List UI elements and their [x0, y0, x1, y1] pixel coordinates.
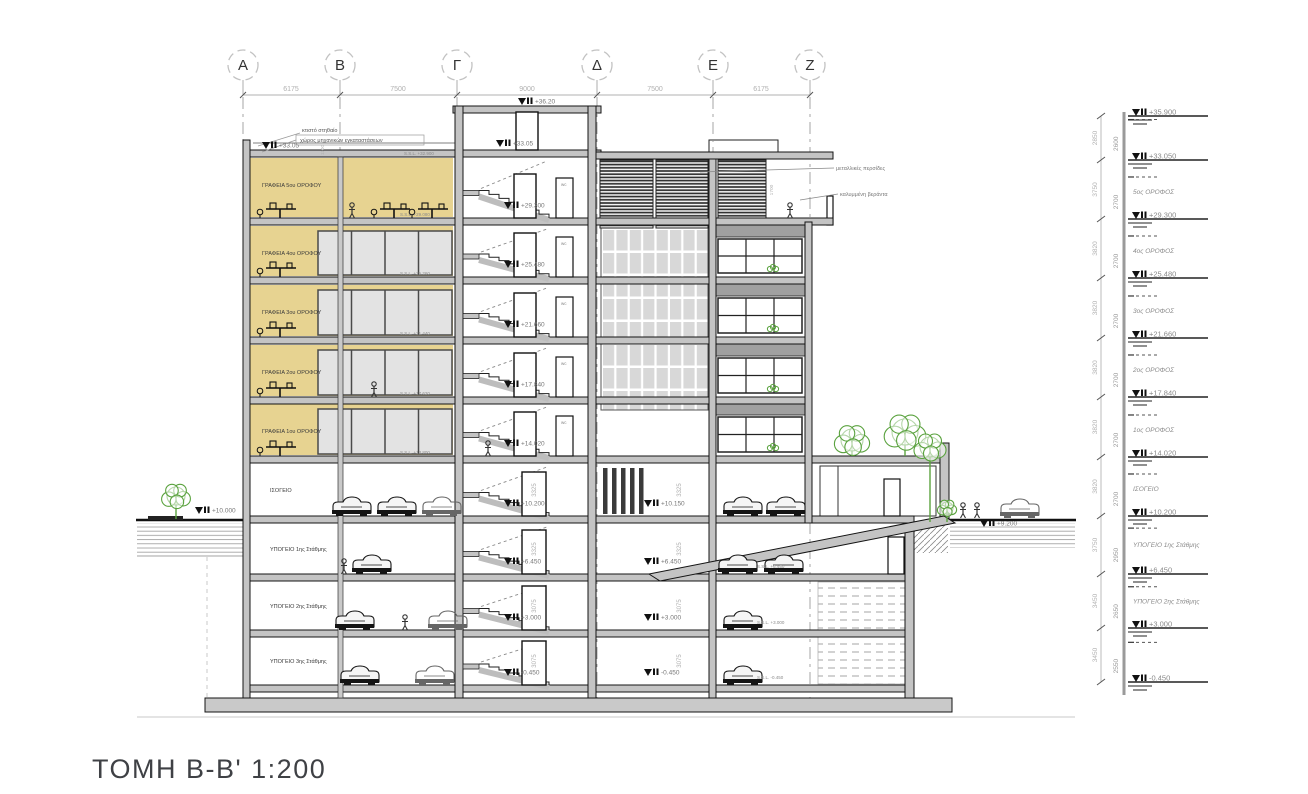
car-icon [352, 555, 391, 574]
svg-text:καλυμμένη βεράντα: καλυμμένη βεράντα [840, 191, 888, 198]
svg-text:Δ: Δ [592, 57, 602, 74]
svg-text:2700: 2700 [1113, 372, 1120, 387]
svg-text:2950: 2950 [1113, 547, 1120, 562]
svg-text:3450: 3450 [1092, 647, 1099, 662]
svg-text:wc: wc [561, 182, 567, 187]
svg-text:+9.200: +9.200 [997, 521, 1017, 528]
grid-dimension-line: ΑΒΓΔΕΖ61757500900075006175 [228, 50, 825, 98]
svg-text:3820: 3820 [1092, 419, 1099, 434]
svg-text:ΥΠΟΓΕΙΟ 2ης Στάθμης: ΥΠΟΓΕΙΟ 2ης Στάθμης [1133, 597, 1200, 605]
svg-text:S.S.L. -0.450: S.S.L. -0.450 [757, 675, 784, 680]
person-figure [787, 203, 793, 218]
svg-text:Ε: Ε [708, 57, 718, 74]
svg-text:2550: 2550 [1113, 659, 1120, 674]
svg-text:ΓΡΑΦΕΙΑ 2ου ΟΡΟΦΟΥ: ΓΡΑΦΕΙΑ 2ου ΟΡΟΦΟΥ [262, 370, 322, 376]
car-icon [766, 497, 805, 516]
svg-text:3325: 3325 [532, 483, 538, 497]
svg-text:+33.05: +33.05 [513, 141, 533, 148]
svg-text:+6.450: +6.450 [1149, 566, 1172, 575]
svg-text:wc: wc [561, 301, 567, 306]
svg-text:1ος ΟΡΟΦΟΣ: 1ος ΟΡΟΦΟΣ [1133, 427, 1175, 434]
svg-text:ΥΠΟΓΕΙΟ 1ης Στάθμης: ΥΠΟΓΕΙΟ 1ης Στάθμης [270, 546, 327, 553]
svg-text:2650: 2650 [1113, 604, 1120, 619]
svg-text:+25.480: +25.480 [1149, 270, 1176, 279]
svg-text:S.S.L. +17.620: S.S.L. +17.620 [400, 391, 430, 396]
svg-text:ΓΡΑΦΕΙΑ 5ου ΟΡΟΦΟΥ: ΓΡΑΦΕΙΑ 5ου ΟΡΟΦΟΥ [262, 183, 322, 189]
svg-text:ΓΡΑΦΕΙΑ 1ου ΟΡΟΦΟΥ: ΓΡΑΦΕΙΑ 1ου ΟΡΟΦΟΥ [262, 429, 322, 435]
level-scale: +35.90028502600+33.050375027005ος ΟΡΟΦΟΣ… [1092, 108, 1208, 696]
svg-text:+10.200: +10.200 [521, 501, 545, 508]
svg-text:+29.300: +29.300 [521, 203, 545, 210]
svg-text:7500: 7500 [390, 86, 406, 93]
svg-text:+14.020: +14.020 [1149, 449, 1176, 458]
svg-text:ΓΡΑΦΕΙΑ 3ου ΟΡΟΦΟΥ: ΓΡΑΦΕΙΑ 3ου ΟΡΟΦΟΥ [262, 310, 322, 316]
svg-text:2ος ΟΡΟΦΟΣ: 2ος ΟΡΟΦΟΣ [1132, 367, 1175, 374]
svg-text:2700: 2700 [1113, 432, 1120, 447]
car-icon [723, 497, 762, 516]
svg-text:wc: wc [561, 241, 567, 246]
svg-text:μεταλλικές περσίδες: μεταλλικές περσίδες [836, 165, 886, 172]
svg-text:χώρος μηχανικών εγκαταστάσεων: χώρος μηχανικών εγκαταστάσεων [300, 137, 383, 144]
svg-text:+10.000: +10.000 [212, 508, 236, 515]
svg-text:6175: 6175 [283, 86, 299, 93]
svg-text:2850: 2850 [1092, 130, 1099, 145]
svg-text:9000: 9000 [519, 86, 535, 93]
svg-text:-0.450: -0.450 [661, 670, 680, 677]
svg-text:+3.000: +3.000 [1149, 620, 1172, 629]
svg-text:3325: 3325 [532, 542, 538, 556]
svg-text:S.S.L. +32.900: S.S.L. +32.900 [404, 151, 434, 156]
svg-text:+25.480: +25.480 [521, 262, 545, 269]
svg-text:Β: Β [335, 57, 345, 74]
svg-text:wc: wc [561, 420, 567, 425]
svg-text:2700: 2700 [1113, 194, 1120, 209]
svg-text:+14.020: +14.020 [521, 441, 545, 448]
svg-text:wc: wc [561, 361, 567, 366]
svg-text:6175: 6175 [753, 86, 769, 93]
svg-text:ΥΠΟΓΕΙΟ 3ης Στάθμης: ΥΠΟΓΕΙΟ 3ης Στάθμης [270, 658, 327, 665]
svg-text:3075: 3075 [532, 599, 538, 613]
svg-text:+29.300: +29.300 [1149, 211, 1176, 220]
person-figure [960, 503, 966, 518]
svg-text:S.S.L. +3.000: S.S.L. +3.000 [757, 620, 785, 625]
sheet: wcwcwcwcwcκτιστό στηθαίοχώρος μηχανικών … [0, 0, 1308, 794]
svg-text:3820: 3820 [1092, 300, 1099, 315]
car-icon [1000, 499, 1039, 518]
svg-text:+10.200: +10.200 [1149, 508, 1176, 517]
car-icon [340, 666, 379, 685]
section-title: ΤΟΜΗ Β-Β' 1:200 [92, 754, 326, 785]
svg-text:-0.450: -0.450 [521, 670, 540, 677]
svg-text:2700: 2700 [1113, 253, 1120, 268]
svg-text:+33.050: +33.050 [1149, 152, 1176, 161]
svg-text:2700: 2700 [1113, 313, 1120, 328]
svg-text:+6.450: +6.450 [521, 559, 541, 566]
svg-text:S.S.L. +13.800: S.S.L. +13.800 [400, 450, 430, 455]
svg-text:2600: 2600 [1113, 136, 1120, 151]
svg-text:ΙΣΟΓΕΙΟ: ΙΣΟΓΕΙΟ [270, 488, 292, 494]
svg-text:+3.000: +3.000 [521, 615, 541, 622]
car-icon [377, 497, 416, 516]
svg-text:7500: 7500 [647, 86, 663, 93]
svg-text:2700: 2700 [1113, 491, 1120, 506]
svg-text:3ος ΟΡΟΦΟΣ: 3ος ΟΡΟΦΟΣ [1133, 308, 1175, 315]
svg-text:4ος ΟΡΟΦΟΣ: 4ος ΟΡΟΦΟΣ [1133, 248, 1175, 255]
svg-text:S.S.L. +21.440: S.S.L. +21.440 [400, 331, 430, 336]
svg-text:+21.660: +21.660 [521, 322, 545, 329]
car-icon [415, 666, 454, 685]
svg-text:3750: 3750 [1092, 182, 1099, 197]
svg-text:3075: 3075 [677, 599, 683, 613]
svg-text:S.S.L. +25.260: S.S.L. +25.260 [400, 271, 430, 276]
svg-text:+33.05: +33.05 [279, 143, 299, 150]
svg-text:3450: 3450 [1092, 593, 1099, 608]
svg-text:3750: 3750 [1092, 537, 1099, 552]
tree-icon [834, 426, 869, 456]
svg-text:1700: 1700 [769, 184, 775, 195]
svg-text:3325: 3325 [677, 483, 683, 497]
svg-text:3075: 3075 [677, 654, 683, 668]
svg-text:+35.900: +35.900 [1149, 108, 1176, 117]
svg-text:+21.660: +21.660 [1149, 330, 1176, 339]
svg-text:1100: 1100 [320, 145, 326, 156]
svg-text:ΥΠΟΓΕΙΟ 2ης Στάθμης: ΥΠΟΓΕΙΟ 2ης Στάθμης [270, 603, 327, 610]
svg-text:3075: 3075 [532, 654, 538, 668]
svg-text:ΓΡΑΦΕΙΑ 4ου ΟΡΟΦΟΥ: ΓΡΑΦΕΙΑ 4ου ΟΡΟΦΟΥ [262, 251, 322, 257]
svg-text:3820: 3820 [1092, 479, 1099, 494]
svg-text:+17.840: +17.840 [521, 382, 545, 389]
svg-text:+10.150: +10.150 [661, 501, 685, 508]
svg-text:S.S.L. +29.080: S.S.L. +29.080 [400, 212, 430, 217]
svg-text:5ος ΟΡΟΦΟΣ: 5ος ΟΡΟΦΟΣ [1133, 189, 1175, 196]
svg-text:+36.20: +36.20 [535, 99, 555, 106]
svg-text:+17.840: +17.840 [1149, 389, 1176, 398]
svg-text:κτιστό στηθαίο: κτιστό στηθαίο [302, 127, 337, 134]
svg-text:3820: 3820 [1092, 360, 1099, 375]
svg-text:3325: 3325 [677, 542, 683, 556]
svg-text:Γ: Γ [453, 57, 461, 74]
svg-text:Ζ: Ζ [805, 57, 814, 74]
section-drawing: wcwcwcwcwcκτιστό στηθαίοχώρος μηχανικών … [0, 0, 1308, 794]
person-figure [402, 615, 408, 630]
svg-text:Α: Α [238, 57, 248, 74]
person-figure [974, 503, 980, 518]
svg-text:+6.450: +6.450 [661, 559, 681, 566]
svg-text:+3.000: +3.000 [661, 615, 681, 622]
svg-text:3820: 3820 [1092, 241, 1099, 256]
svg-text:ΙΣΟΓΕΙΟ: ΙΣΟΓΕΙΟ [1133, 486, 1159, 493]
tree-icon [162, 484, 191, 519]
svg-text:ΥΠΟΓΕΙΟ 1ης Στάθμης: ΥΠΟΓΕΙΟ 1ης Στάθμης [1133, 541, 1200, 549]
svg-text:-0.450: -0.450 [1149, 674, 1170, 683]
svg-text:S.S.L. +6.450: S.S.L. +6.450 [757, 564, 785, 569]
